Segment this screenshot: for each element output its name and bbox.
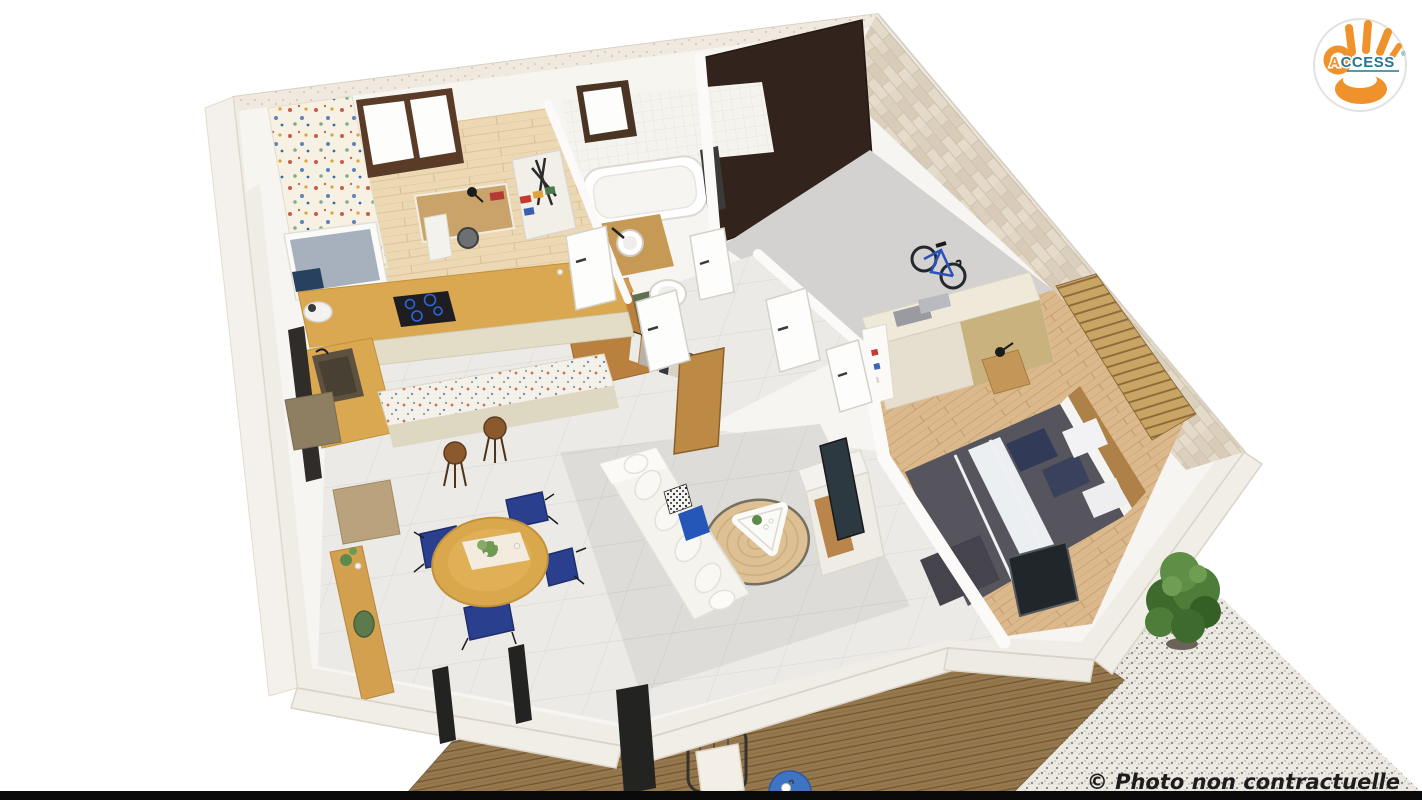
floor-plan-render: ACCESS ® © Photo non contractuelle: [0, 0, 1422, 800]
logo-badge: ACCESS ®: [1314, 19, 1406, 111]
table-plant: [752, 515, 762, 525]
green-plate: [354, 611, 374, 637]
window-bathroom: [576, 80, 637, 143]
candle: [514, 543, 519, 548]
bottom-letterbox-bar: [0, 791, 1422, 800]
chair-cushion: [696, 744, 744, 797]
sideboard-plant: [340, 554, 352, 566]
spice-jar: [557, 269, 563, 275]
registered-mark: ®: [1401, 51, 1406, 58]
open-wood-door: [674, 348, 724, 454]
kitchen-doormat: [285, 392, 341, 450]
desk-chair: [458, 228, 478, 248]
doormat: [333, 480, 400, 544]
navy-pillow: [292, 268, 324, 292]
induction-hob: [393, 291, 456, 327]
watermark-text: © Photo non contractuelle: [1087, 770, 1400, 794]
logo-wordmark: ACCESS: [1329, 54, 1395, 71]
window-kids-room: [356, 88, 464, 178]
food-processor: [304, 302, 332, 322]
render-canvas: ACCESS ® © Photo non contractuelle: [0, 0, 1422, 800]
